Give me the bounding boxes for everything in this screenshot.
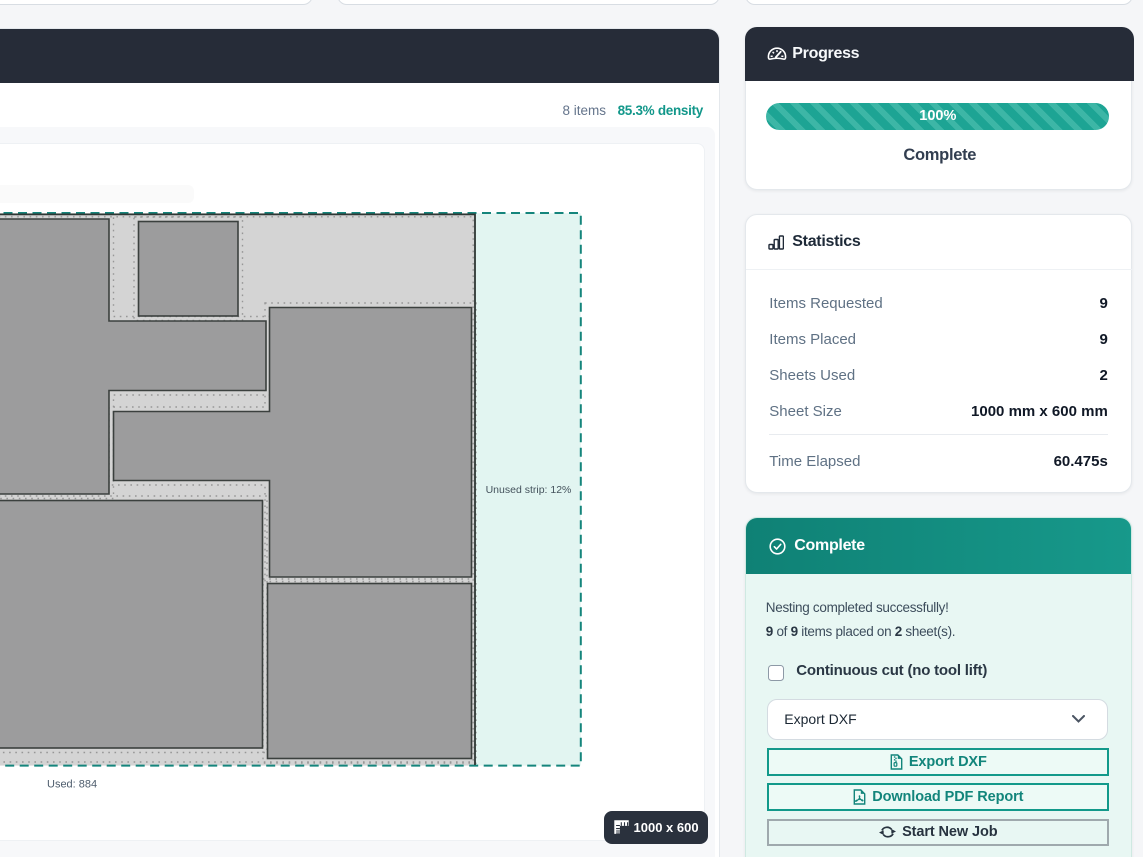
svg-text:Used: 884: Used: 884 [47,779,97,791]
svg-text:Unused strip: 12%: Unused strip: 12% [486,484,572,496]
